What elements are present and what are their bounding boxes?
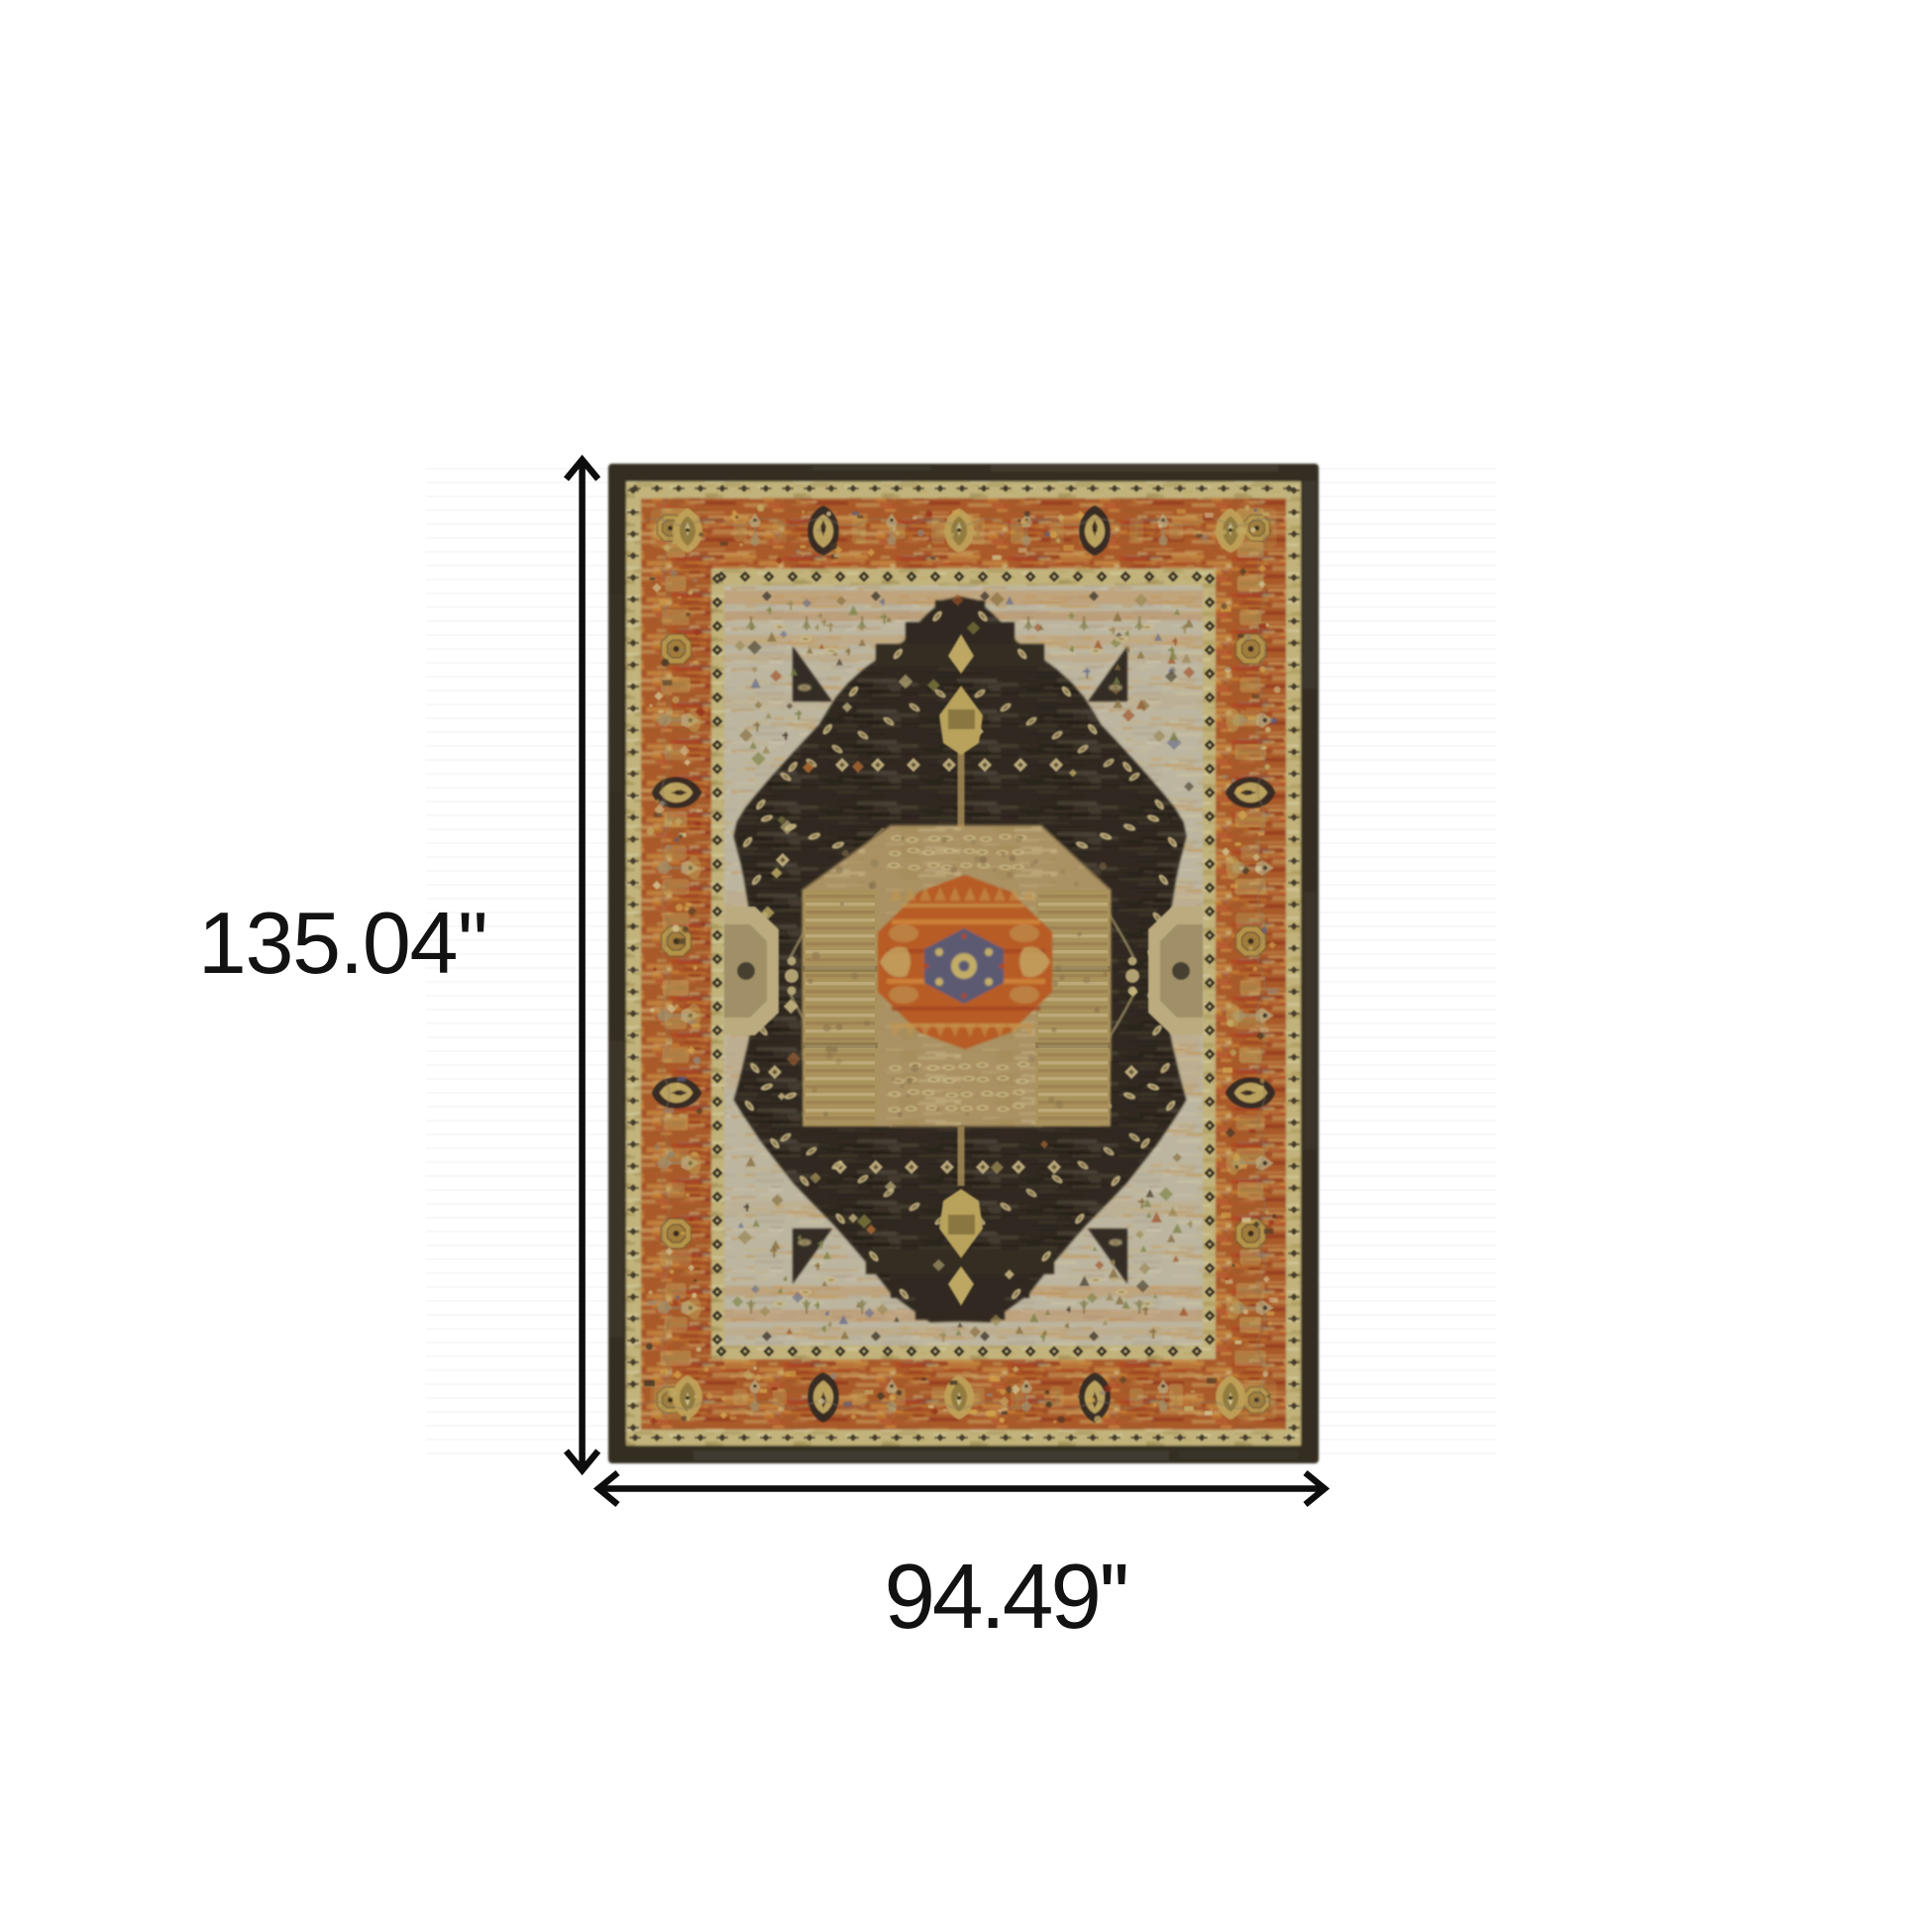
- svg-text:135.04'': 135.04'': [198, 894, 487, 992]
- svg-text:94.49'': 94.49'': [884, 1545, 1126, 1648]
